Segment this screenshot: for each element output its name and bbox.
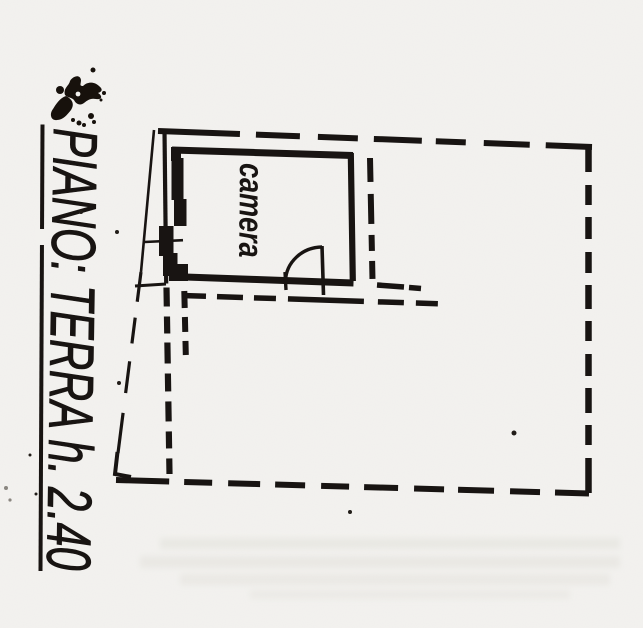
svg-text:PIANO: TERRA h. 2.40: PIANO: TERRA h. 2.40 [34, 128, 110, 571]
svg-text:camera: camera [231, 163, 269, 258]
